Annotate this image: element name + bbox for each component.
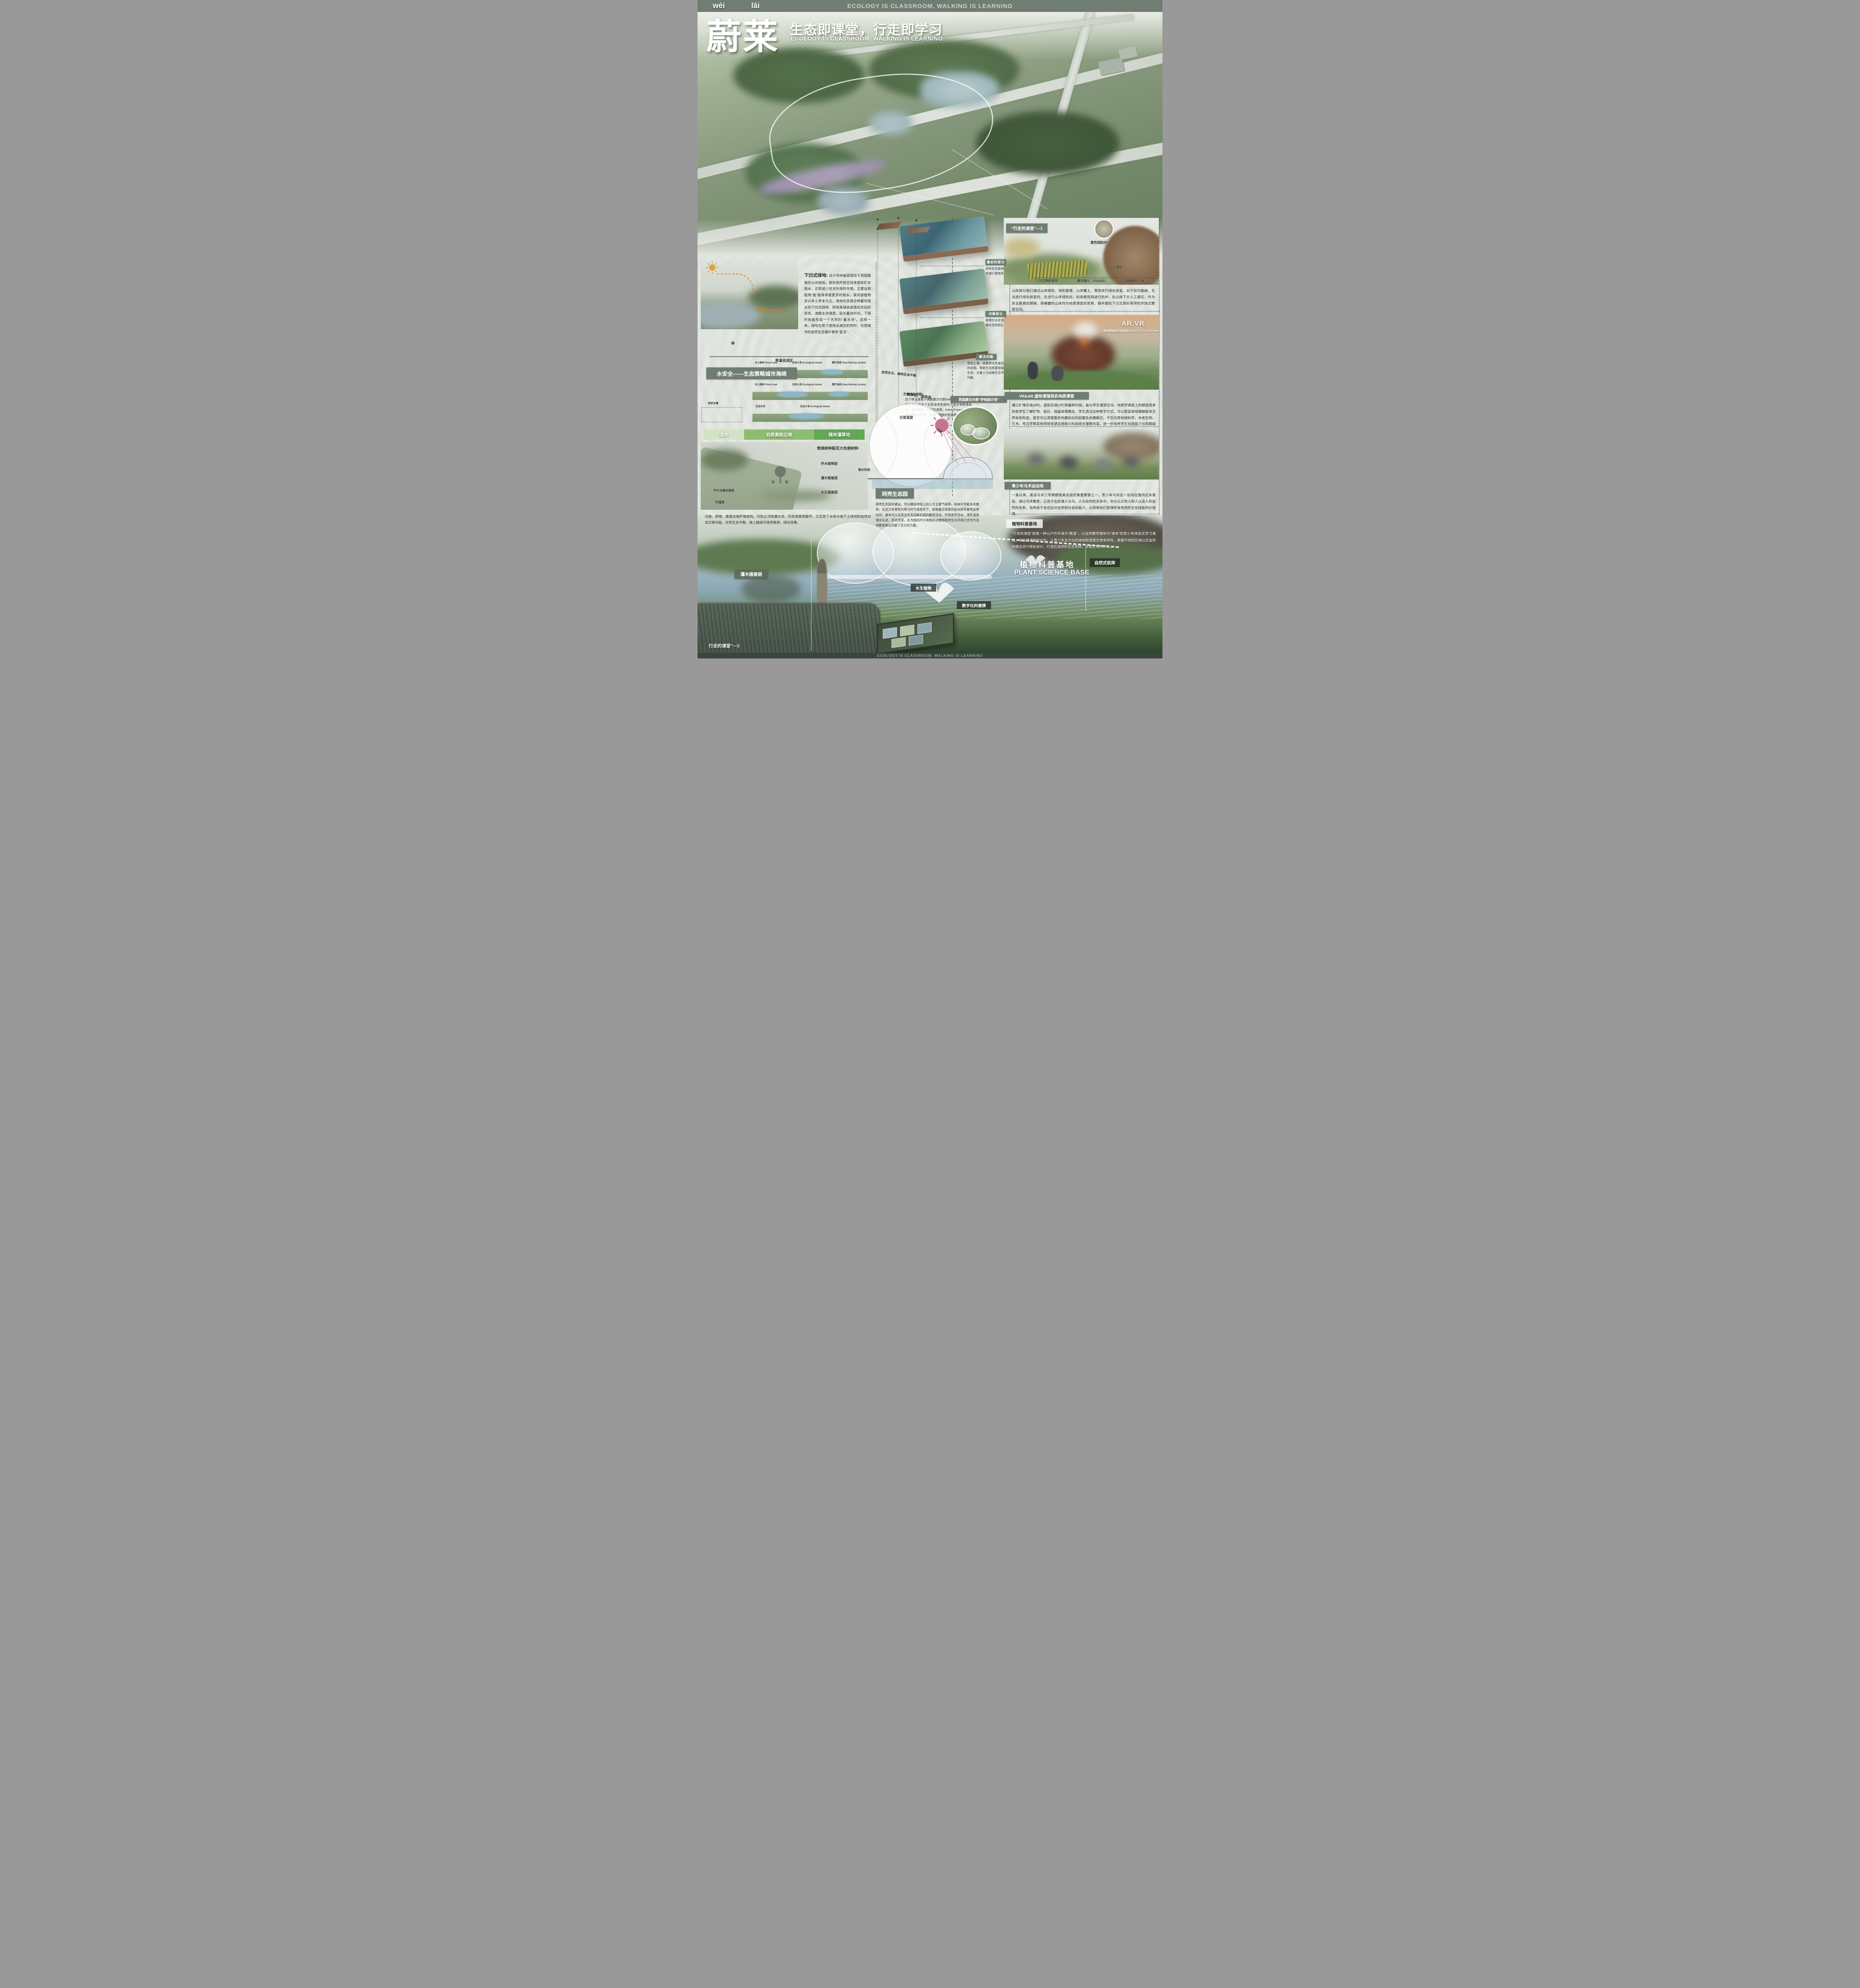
bottom-banner: ECOLOGY IS CLASSROOM, WALKING IS LEARNIN… — [698, 653, 1162, 658]
guide-dot-v2 — [898, 221, 899, 428]
arvr-photo: AR.VR 虚拟增强现实地质课堂 REALITY CLASSROOM — [1004, 315, 1159, 390]
volcano-lava — [1079, 338, 1089, 345]
arvr-lawn — [1004, 371, 1159, 390]
triangle-marker-2: ▲ — [896, 215, 900, 220]
triangle-marker-3: ▲ — [914, 218, 918, 222]
plant-base-label-text: 植物科普基地 — [1012, 521, 1037, 527]
eden-label: 英国康沃尔郡“伊甸园计划” — [950, 396, 1007, 403]
terrain-slab-solution — [899, 321, 988, 367]
sunken-green-block: 下凹式绿地: 设计场地被高程低于周围路面的公共绿地，是利用开放空间承接和贮存雨水… — [804, 272, 871, 335]
sponge-strip-2: 水上森林 Flood road 生态小岛 Ecological Island 慢… — [752, 382, 868, 400]
sign-bird-thumb-3 — [917, 622, 932, 634]
netshell-body: 网壳生态园的建设，可以模拟地球上的三大主要气候带，收纳尽可能多的植物，在武汉冬季… — [876, 502, 979, 528]
softnet-inset-circle — [1094, 219, 1114, 239]
strip3-label-island: 生态小岛 Ecological Island — [800, 404, 830, 408]
plant-base-en: PLANT SCIENCE BASE — [1014, 569, 1089, 577]
glass-dome — [943, 457, 993, 479]
bottom-guide-dot-2 — [1085, 547, 1086, 611]
sunken-green-body: 设计场地被高程低于周围路面的公共绿地，是利用开放空间承接和贮存雨水，达到减少径流… — [804, 274, 871, 334]
strip2-label-flood: 水上森林 Flood road — [755, 382, 777, 386]
student-silhouette-2 — [1051, 366, 1063, 381]
forest-patch-3 — [976, 111, 1119, 175]
plant-base-body: “行走的课堂”就是一种以户外环境为“教室”，以自然教学媒体为“课本”的青少年体验… — [1012, 530, 1156, 550]
aquatic-plants-text: 水生植物 — [915, 585, 931, 591]
plant-base-cn: 植物科普基地 — [1020, 558, 1075, 570]
strip2-label-slow: 慢行系统 Slow Moving System — [832, 382, 866, 386]
pond-label: 现状水塘 — [708, 401, 718, 405]
evaporation-arrow — [717, 274, 753, 290]
stage-problem-label-text: 问题部分 — [989, 312, 1003, 316]
sign-bird-thumb-4 — [892, 637, 906, 648]
horse-4 — [1123, 456, 1139, 467]
sunken-green-title: 下凹式绿地: — [804, 273, 828, 278]
right-divider-2 — [1009, 426, 1160, 427]
arvr-overlay-title: AR.VR — [1121, 320, 1145, 328]
left-bottom-paragraph: 河道、岸坡、路基边坡护坡结构。可防止河岸遭水流、风浪侵袭而破坏，又实现了水体与坡… — [705, 514, 871, 526]
equestrian-label-text: 青少年马术运动场 — [1012, 483, 1044, 489]
eden-aerial-photo — [952, 406, 998, 445]
sign-bird-thumb-2 — [900, 625, 914, 636]
stage-initial-label: 最初的部分 — [985, 259, 1006, 265]
bottom-guide-dot-1 — [811, 539, 812, 650]
strip1-label-island: 生态小岛 Ecological Island — [792, 361, 822, 364]
plant-base-label-box: 植物科普基地 — [1006, 519, 1043, 528]
digital-sign-box: 数字化科普牌 — [957, 601, 991, 609]
shrub-layer-text: 灌木植被层 — [741, 571, 762, 577]
people-group — [741, 575, 801, 603]
walking1-body: 山体部分我们通过山体排险、地形整理、山体覆土，再而进行绿化修复，对于较为陡峭，无… — [1012, 288, 1155, 313]
sign-bird-thumb-5 — [909, 635, 923, 645]
strip3-label-bubble: 生态水泡 — [756, 404, 765, 408]
greenhouse-label: 巨型温室 — [900, 415, 913, 420]
horse-2 — [1059, 456, 1078, 468]
netshell-title-text: 网壳生态园 — [882, 490, 908, 497]
water-safety-title-text: 水安全——生态策略城市海绵 — [717, 369, 787, 377]
river-section-render — [701, 258, 798, 329]
bar-sparse-forest: 疏林灌草地 — [814, 429, 865, 440]
top-banner-text: ECOLOGY IS CLASSROOM, WALKING IS LEARNIN… — [847, 3, 1013, 10]
guide-dot-v1 — [877, 223, 878, 421]
plant-aquatic-label: 水生植被层 — [821, 490, 838, 495]
slope-trees — [701, 449, 748, 471]
strip1-pool-2 — [820, 369, 844, 375]
bar-sparse-forest-label: 疏林灌草地 — [828, 431, 850, 438]
stage-solution-label-text: 解决问题 — [979, 355, 993, 359]
water-safety-title: 水安全——生态策略城市海绵 — [706, 367, 797, 379]
stage-solution-label: 解决问题 — [976, 354, 997, 360]
slogan-cn: 生态即课堂，行走即学习 — [790, 19, 943, 38]
aquatic-plants-box: 水生植物 — [911, 584, 936, 592]
bottom-banner-text: ECOLOGY IS CLASSROOM, WALKING IS LEARNIN… — [877, 654, 983, 658]
mini-section-sketch — [702, 407, 742, 422]
horse-3 — [1095, 459, 1113, 470]
equestrian-label-box: 青少年马术运动场 — [1005, 482, 1051, 489]
sign-bird-thumb-1 — [883, 627, 897, 639]
stage-solution-body: 增加土壤，收集雨水形成自然的水网。帮助生态修复和植被生长。注重人与动物生态平衡问… — [967, 361, 1007, 380]
digital-sign-text: 数字化科普牌 — [962, 602, 986, 608]
rock-label: 人工塑石 — [1110, 265, 1122, 269]
ground-water — [872, 479, 993, 489]
strip3-pool — [788, 413, 824, 419]
walking1-tag-text: “行走的课堂”—1 — [1011, 225, 1042, 231]
shrub-layer-box: 灌木植被层 — [735, 569, 768, 579]
arvr-overlay-sub: 虚拟增强现实地质课堂 REALITY CLASSROOM — [1103, 328, 1158, 332]
right-divider-3 — [1009, 514, 1160, 514]
slogan-en: ECOLOGY IS CLASSROOM, WALKING IS LEARNIN… — [791, 36, 943, 42]
note-balance: 自然生长，维持生态平衡 — [881, 370, 917, 378]
plant-evergreen-label: 常绿树种配花大色艳树种 — [817, 445, 859, 451]
stage-problem-label: 问题部分 — [985, 311, 1006, 317]
w1-cap-lawn: 下沉式草阶草坪 — [1036, 279, 1058, 283]
netshell-quote-title: “网壳生态园” — [905, 392, 923, 396]
plant-shrub-label: 灌木植被层 — [821, 476, 838, 480]
plant-vine-label: 乔木及藤本植物 — [713, 488, 735, 493]
eden-dome-2 — [972, 427, 990, 439]
strip2-pool-2 — [828, 391, 850, 397]
sun-icon — [706, 261, 719, 274]
stage-initial-label-text: 最初的部分 — [987, 260, 1005, 264]
dry-creek-line — [709, 356, 869, 357]
student-silhouette-1 — [1028, 362, 1038, 379]
terrain-slab-problem — [899, 268, 988, 315]
horse-1 — [1028, 453, 1045, 465]
dome-base-deck — [825, 575, 992, 579]
page-title: 蔚莱 — [706, 9, 779, 59]
walking1-tag: “行走的课堂”—1 — [1006, 223, 1048, 233]
stage-connector-2 — [920, 317, 984, 318]
strip2-label-island: 生态小岛 Ecological Island — [792, 382, 822, 386]
natural-bank-box: 自然式驳岸 — [1090, 558, 1120, 567]
arvr-label-text: VR&AR 虚拟增强现实地质课堂 — [1019, 393, 1074, 399]
w1-trees-yellow — [1004, 238, 1040, 258]
bar-wetland: 湿地 — [704, 429, 744, 440]
netshell-title-box: 网壳生态园 — [876, 488, 914, 499]
bar-wetland-label: 湿地 — [719, 431, 728, 438]
tree-silhouette-icon — [768, 465, 792, 486]
walking2-tag: 行走的课堂”—2 — [709, 643, 740, 649]
right-divider-1 — [1009, 311, 1160, 312]
bar-rock-slope-label: 岩质高陡边坡 — [766, 431, 792, 438]
person-standing — [817, 559, 827, 607]
slope-section-render — [701, 442, 868, 510]
river-bank-trees — [748, 285, 798, 309]
equestrian-photo — [1004, 429, 1159, 480]
sponge-strip-3: 生态水泡 生态小岛 Ecological Island — [752, 404, 868, 422]
strip1-label-flood: 水上森林 Flood road — [755, 361, 777, 364]
bar-rock-slope: 岩质高陡边坡 — [744, 429, 814, 440]
poster-root: ECOLOGY IS CLASSROOM, WALKING IS LEARNIN… — [698, 0, 1162, 658]
stage-connector-1 — [920, 266, 984, 266]
interpretive-signboard — [877, 613, 954, 653]
plant-mix-label: 乔灌草 — [715, 500, 725, 505]
right-frame-dot-right — [1159, 218, 1160, 548]
detention-label: 滞 — [730, 340, 736, 345]
natural-bank-text: 自然式驳岸 — [1094, 560, 1116, 566]
eden-label-text: 英国康沃尔郡“伊甸园计划” — [958, 397, 999, 402]
volcano-smoke — [1073, 322, 1097, 340]
arvr-label-box: VR&AR 虚拟增强现实地质课堂 — [1005, 392, 1089, 400]
w1-cap-mountain: 较陡峭的山体 — [1125, 279, 1144, 283]
rain-use-label: 雨水利用 — [858, 468, 870, 472]
w1-caption-line — [1032, 278, 1155, 278]
evaporation-label: 蒸发 Evaporation — [757, 308, 783, 312]
river-water — [701, 301, 760, 329]
guide-dot-v3 — [916, 223, 917, 410]
triangle-marker-1: ▲ — [876, 217, 880, 221]
strip1-label-slow: 慢行系统 Slow Moving System — [832, 361, 866, 364]
plant-arbor-label: 乔木植物层 — [821, 461, 838, 466]
softnet-label: 柔性网防护 — [1090, 240, 1108, 245]
strip2-pool — [776, 391, 808, 398]
w1-cap-vr: 教学展示（VR&AR） — [1077, 279, 1108, 283]
